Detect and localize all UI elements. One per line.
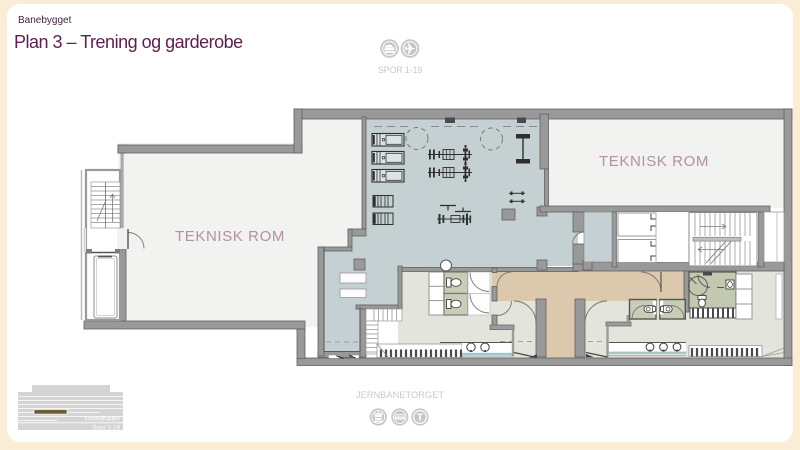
svg-text:TEKNISK ROM: TEKNISK ROM [599,153,709,170]
svg-text:TEKNISK ROM: TEKNISK ROM [175,228,285,245]
svg-text:JERNBANETORGET: JERNBANETORGET [356,390,444,400]
svg-text:Plan 3 – Trening og garderobe: Plan 3 – Trening og garderobe [14,32,243,52]
svg-text:SPOR 1-19: SPOR 1-19 [378,65,422,75]
svg-text:T: T [417,412,424,424]
svg-text:Hovedhallen: Hovedhallen [85,416,121,423]
svg-text:Spor 1-19: Spor 1-19 [92,425,120,432]
svg-text:Banebygget: Banebygget [18,15,72,26]
